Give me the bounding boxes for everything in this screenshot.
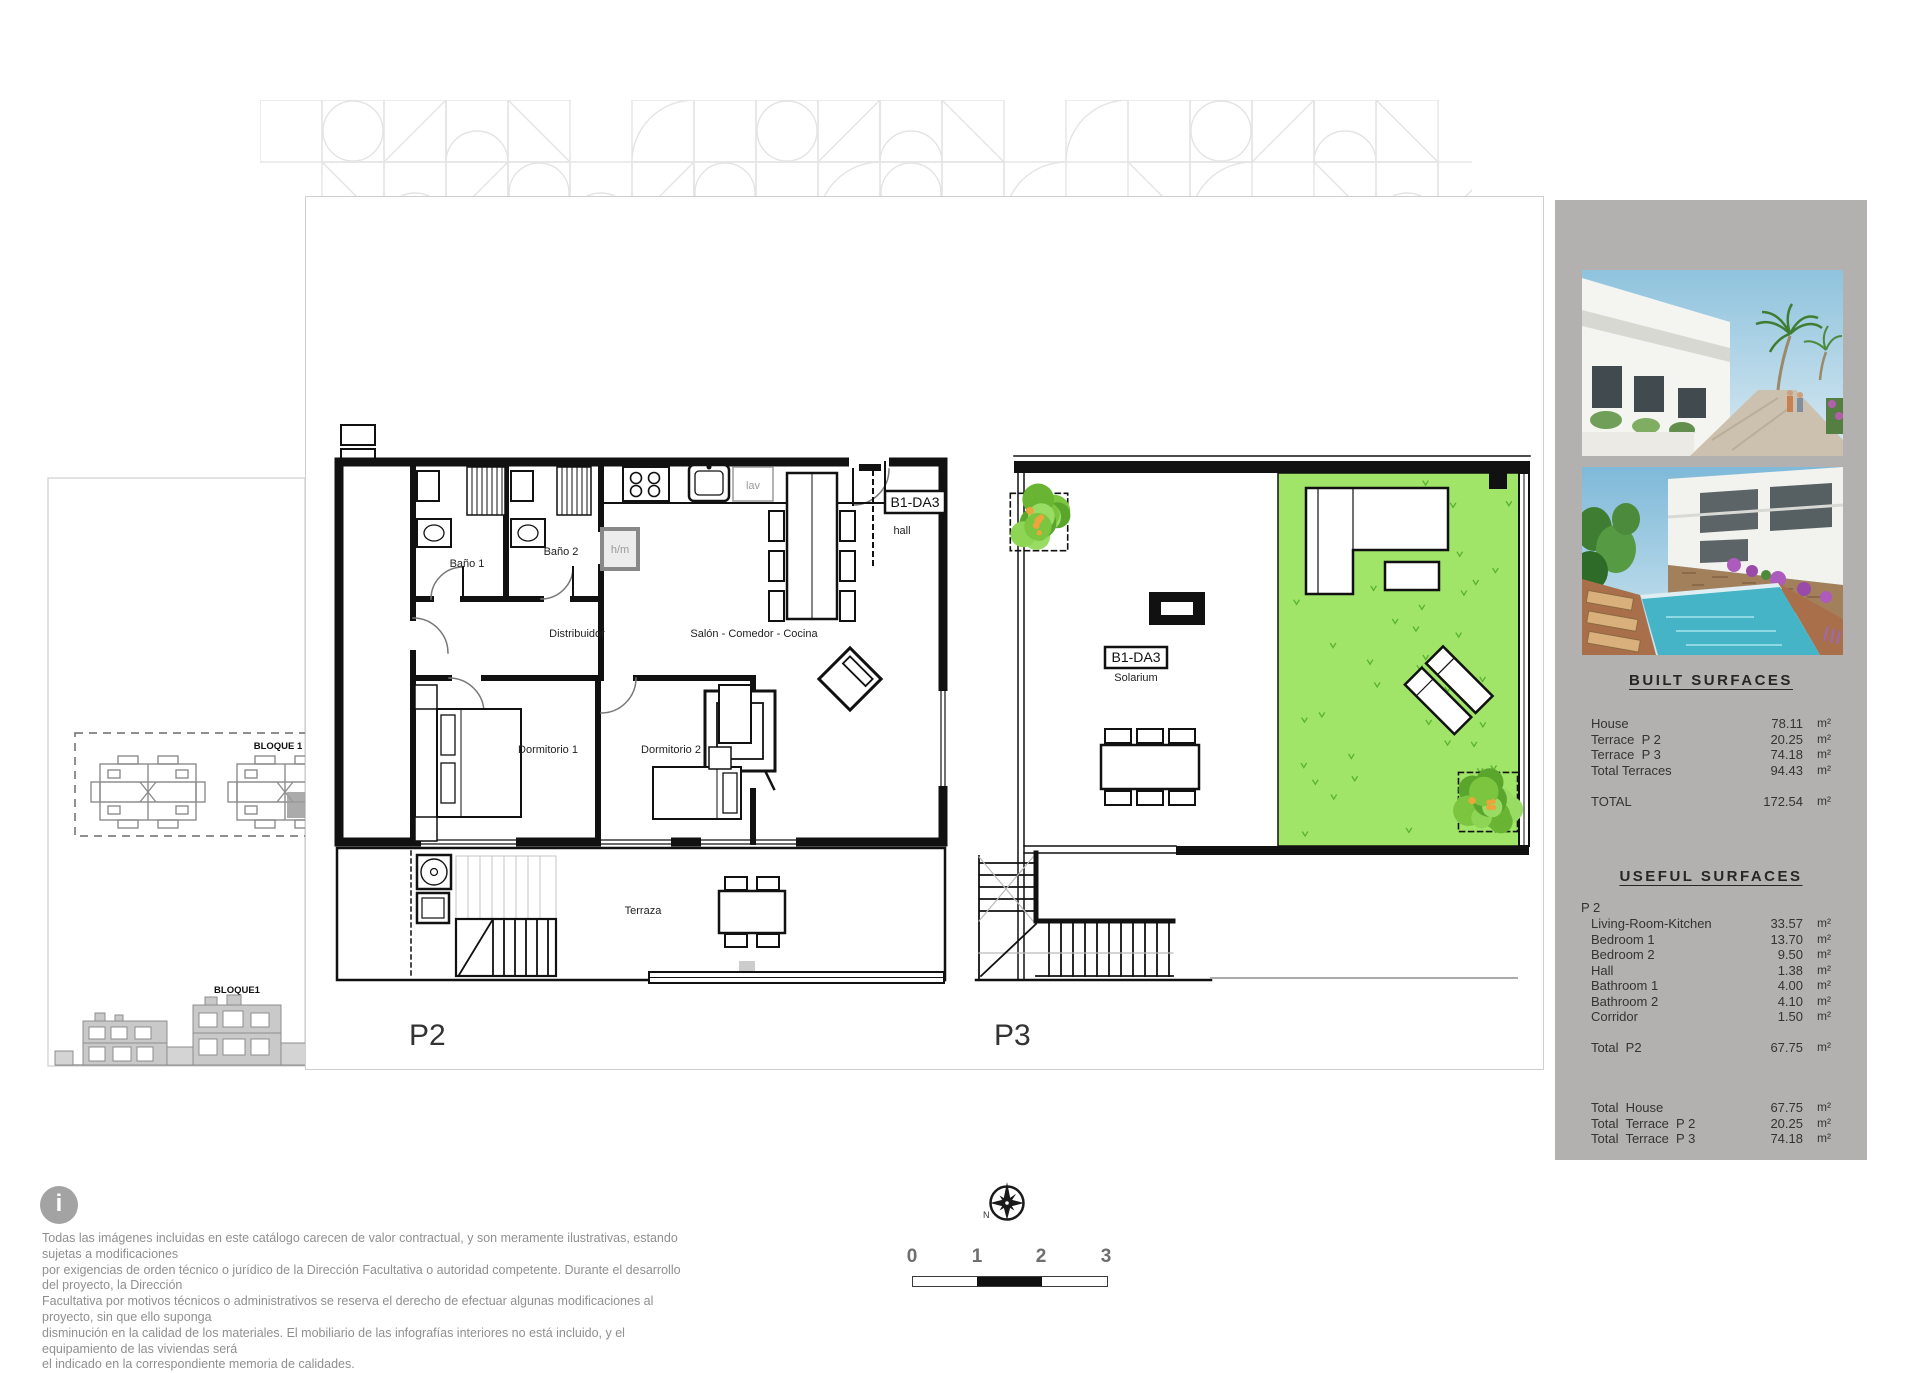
table-row: Bathroom 2 4.10 m² xyxy=(1591,994,1831,1010)
p2-unit-code: B1-DA3 xyxy=(890,494,939,510)
table-row: Living-Room-Kitchen 33.57 m² xyxy=(1591,916,1831,932)
label-hm: h/m xyxy=(611,544,629,556)
info-icon: i xyxy=(40,1186,78,1224)
built-surfaces-title: BUILT SURFACES xyxy=(1591,672,1831,689)
p3-plan-label: P3 xyxy=(994,1019,1031,1052)
elevation-drawing xyxy=(55,995,307,1065)
room-label-salon: Salón - Comedor - Cocina xyxy=(690,628,818,640)
disclaimer-text: Todas las imágenes incluidas en este cat… xyxy=(42,1231,682,1373)
table-row-grand-total: Total Terrace P 3 74.18 m² xyxy=(1591,1131,1831,1147)
elevation-label: BLOQUE1 xyxy=(214,985,261,996)
compass-icon: N xyxy=(973,1178,1041,1236)
room-label-terraza: Terraza xyxy=(625,905,663,917)
floorplans-svg: lav h/m B1-DA3 hall xyxy=(306,197,1543,1069)
scale-bar xyxy=(912,1276,1108,1287)
table-row-grand-total: Total House 67.75 m² xyxy=(1591,1100,1831,1116)
room-label-dormitorio2: Dormitorio 2 xyxy=(641,744,701,756)
catalog-page: { "plans": { "p2": { "label": "P2", "uni… xyxy=(0,0,1920,1356)
table-row-total: Total P2 67.75 m² xyxy=(1591,1040,1831,1056)
p3-table xyxy=(1101,729,1199,805)
room-label-distribuidor: Distribuidor xyxy=(549,628,605,640)
useful-group-label: P 2 xyxy=(1581,900,1600,915)
floorplan-p3: B1-DA3 Solarium P3 xyxy=(976,456,1530,1052)
table-row: Total Terraces 94.43 m² xyxy=(1591,763,1831,779)
table-row: Bedroom 2 9.50 m² xyxy=(1591,947,1831,963)
table-row-total: TOTAL 172.54 m² xyxy=(1591,794,1831,810)
scale-tick-2: 2 xyxy=(1026,1246,1056,1268)
scale-tick-0: 0 xyxy=(897,1246,927,1268)
room-label-solarium: Solarium xyxy=(1114,672,1157,684)
table-row-grand-total: Total Terrace P 2 20.25 m² xyxy=(1591,1116,1831,1132)
p3-stairs xyxy=(979,853,1173,979)
p3-top-wall xyxy=(1014,461,1530,473)
table-row: Bathroom 1 4.00 m² xyxy=(1591,978,1831,994)
sidebar-panel: BUILT SURFACES House 78.11 m² Terrace P … xyxy=(1555,200,1867,1160)
p2-plan-label: P2 xyxy=(409,1019,446,1052)
block-label: BLOQUE 1 xyxy=(254,741,303,752)
table-row: Terrace P 3 74.18 m² xyxy=(1591,747,1831,763)
room-label-dormitorio1: Dormitorio 1 xyxy=(518,744,578,756)
table-row: House 78.11 m² xyxy=(1591,716,1831,732)
site-cluster-plan-left xyxy=(91,756,205,828)
table-row: Hall 1.38 m² xyxy=(1591,963,1831,979)
label-lav: lav xyxy=(746,480,761,492)
photo-street-render xyxy=(1582,270,1843,456)
useful-surfaces-title: USEFUL SURFACES xyxy=(1591,868,1831,885)
table-row: Bedroom 1 13.70 m² xyxy=(1591,932,1831,948)
room-label-bano1: Baño 1 xyxy=(450,558,485,570)
room-label-bano2: Baño 2 xyxy=(544,546,579,558)
floorplan-container: lav h/m B1-DA3 hall xyxy=(305,196,1544,1070)
photo-pool-render xyxy=(1582,467,1843,655)
table-row: Terrace P 2 20.25 m² xyxy=(1591,732,1831,748)
table-row: Corridor 1.50 m² xyxy=(1591,1009,1831,1025)
scale-bar-filled-segment xyxy=(977,1277,1042,1286)
room-label-hall: hall xyxy=(893,525,910,537)
compass-north-label: N xyxy=(983,1210,990,1220)
scale-tick-3: 3 xyxy=(1091,1246,1121,1268)
p3-unit-code: B1-DA3 xyxy=(1111,649,1160,665)
scale-tick-1: 1 xyxy=(962,1246,992,1268)
floorplan-p2: lav h/m B1-DA3 hall xyxy=(337,425,949,1052)
